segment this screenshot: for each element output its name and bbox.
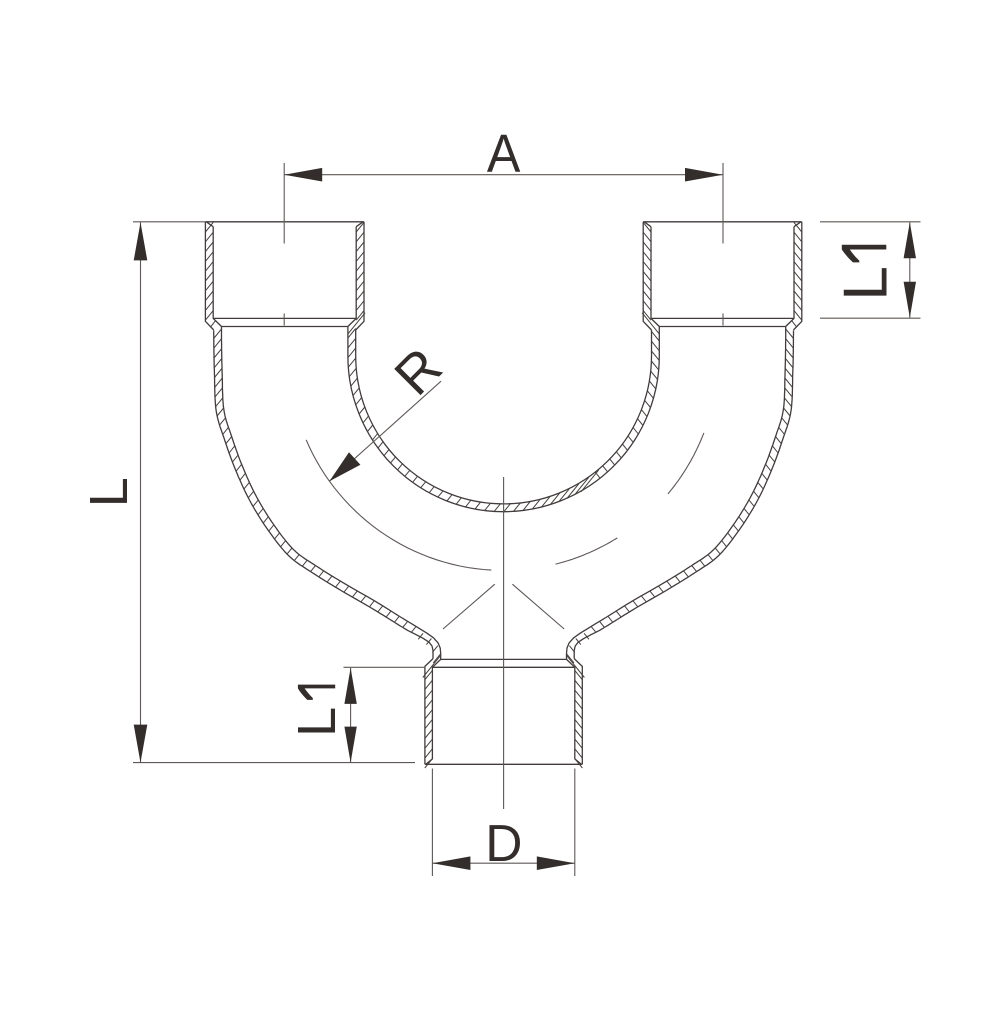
- svg-text:A: A: [487, 124, 521, 184]
- svg-text:L: L: [287, 707, 347, 737]
- svg-text:D: D: [485, 814, 522, 872]
- svg-text:L: L: [830, 266, 900, 301]
- svg-text:L: L: [79, 477, 139, 507]
